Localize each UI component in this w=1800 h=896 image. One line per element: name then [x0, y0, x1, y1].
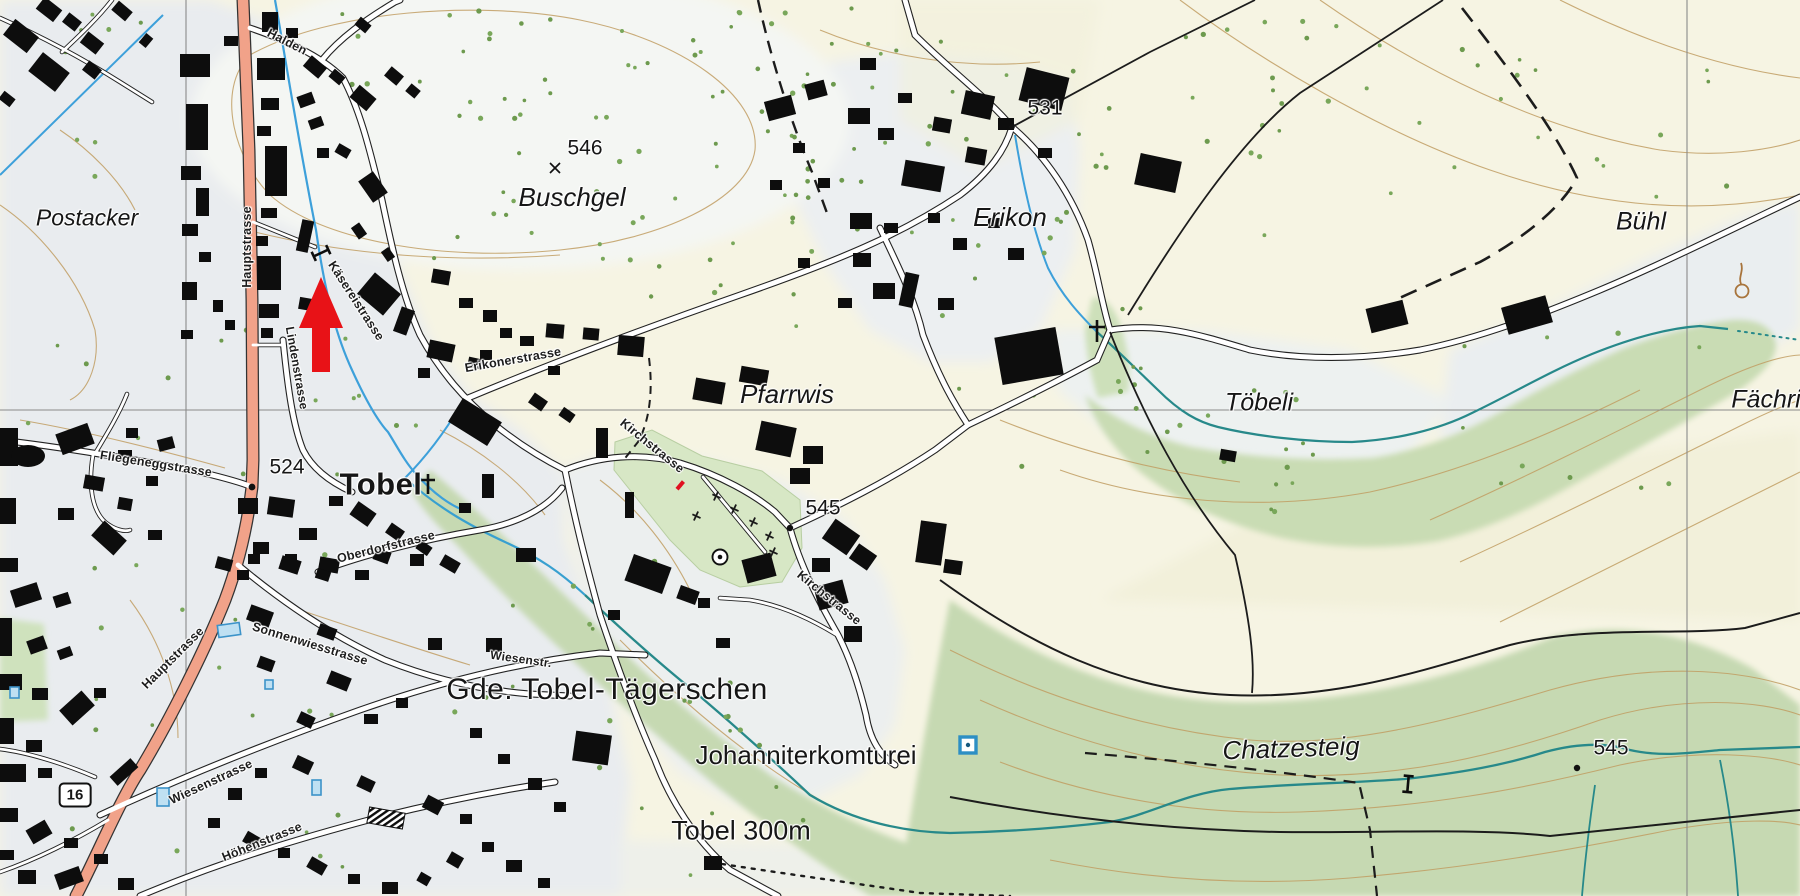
building [259, 304, 279, 318]
building [257, 58, 285, 80]
tree-dot [691, 38, 696, 43]
building [0, 498, 16, 524]
tree-dot [166, 375, 171, 380]
tree-dot [973, 276, 977, 280]
building [770, 180, 782, 190]
tree-dot [1452, 165, 1456, 169]
tree-dot [830, 42, 834, 46]
building [186, 104, 208, 150]
tree-dot [640, 215, 645, 220]
tree-dot [1139, 367, 1143, 371]
tree-dot [503, 97, 507, 101]
tree-dot [1138, 306, 1142, 310]
tree-dot [139, 21, 143, 25]
tree-dot [233, 618, 237, 622]
tree-dot [452, 709, 457, 714]
tree-dot [1107, 106, 1112, 111]
tree-dot [1071, 69, 1076, 74]
building [482, 842, 494, 852]
tree-dot [432, 256, 436, 260]
tree-dot [1206, 413, 1210, 417]
tree-dot [1705, 68, 1709, 72]
tree-dot [1499, 481, 1503, 485]
building [884, 223, 898, 233]
building [596, 428, 608, 458]
tree-dot [1279, 101, 1284, 106]
tree-dot [414, 423, 418, 427]
tree-dot [601, 257, 605, 261]
tree-dot [418, 80, 422, 84]
tree-dot [365, 81, 370, 86]
label-h546: 546 [567, 138, 602, 159]
tree-dot [633, 66, 637, 70]
building [238, 498, 258, 514]
building [418, 368, 430, 378]
tree-dot [964, 137, 969, 142]
building [26, 740, 42, 752]
building [928, 213, 940, 223]
tree-dot [1697, 345, 1701, 349]
tree-dot [134, 563, 138, 567]
tree-dot [512, 116, 517, 121]
building [228, 788, 242, 800]
tree-dot [866, 42, 870, 46]
tree-dot [926, 141, 931, 146]
tree-dot [839, 178, 844, 183]
building [199, 252, 211, 262]
tree-dot [831, 82, 836, 87]
building [482, 474, 494, 498]
tree-dot [883, 141, 887, 145]
tree-dot [723, 715, 727, 719]
building [1008, 248, 1024, 260]
tree-dot [322, 552, 327, 557]
tree-dot [607, 718, 612, 723]
tree-dot [335, 813, 340, 818]
building [938, 298, 954, 310]
tree-dot [910, 230, 914, 234]
building [459, 503, 471, 513]
tree-dot [738, 727, 743, 732]
tree-dot [1005, 73, 1009, 77]
building [146, 476, 158, 486]
tree-dot [1116, 379, 1121, 384]
tree-dot [760, 109, 765, 114]
tree-dot [1518, 58, 1522, 62]
tree-dot [357, 394, 361, 398]
building [18, 870, 36, 884]
tree-dot [594, 115, 598, 119]
building [257, 126, 271, 136]
building [0, 558, 18, 572]
tree-dot [314, 398, 318, 402]
tree-dot [1595, 157, 1600, 162]
building [617, 335, 645, 357]
tree-dot [1536, 136, 1540, 140]
tree-dot [598, 242, 602, 246]
tree-dot [1093, 164, 1098, 169]
building [498, 754, 510, 764]
label-tobel300: Tobel 300m [671, 818, 811, 845]
tree-dot [1461, 426, 1465, 430]
tree-dot [1277, 129, 1281, 133]
tree-dot [715, 165, 719, 169]
building [554, 802, 566, 812]
tree-dot [1365, 86, 1369, 90]
tree-dot [93, 140, 97, 144]
label-faechri: Fächri [1731, 388, 1800, 413]
building [460, 814, 472, 824]
building [793, 143, 805, 153]
tree-dot [1534, 68, 1538, 72]
tree-dot [870, 86, 874, 90]
building [148, 530, 162, 540]
label-tobel: Tobel [340, 469, 423, 500]
building [698, 598, 710, 608]
tree-dot [591, 627, 595, 631]
tree-dot [1602, 164, 1606, 168]
tree-dot [1263, 20, 1268, 25]
tree-dot [518, 112, 523, 117]
tree-dot [640, 806, 644, 810]
tree-dot [626, 63, 630, 67]
tree-dot [26, 421, 30, 425]
building [790, 468, 810, 484]
building [118, 878, 134, 890]
tree-dot [1724, 183, 1729, 188]
building [348, 874, 360, 884]
tree-dot [708, 257, 713, 262]
building [180, 54, 210, 77]
tree-dot [90, 13, 94, 17]
building [818, 178, 830, 188]
building [953, 238, 967, 250]
building [803, 446, 823, 464]
tree-dot [976, 243, 981, 248]
tree-dot [792, 135, 797, 140]
tree-dot [927, 124, 932, 129]
building [0, 764, 26, 782]
tree-dot [1270, 75, 1275, 80]
tree-dot [849, 6, 853, 10]
tree-dot [620, 29, 624, 33]
building [470, 728, 482, 738]
tree-dot [519, 21, 524, 26]
building [943, 559, 963, 575]
label-erikon: Erikon [973, 204, 1047, 230]
building [225, 320, 235, 330]
building [181, 330, 193, 339]
tree-dot [455, 235, 459, 239]
building [257, 256, 281, 290]
tree-dot [1165, 429, 1170, 434]
tree-dot [1462, 344, 1466, 348]
tree-dot [217, 666, 221, 670]
tree-dot [646, 61, 650, 65]
tree-dot [1666, 481, 1671, 486]
tree-dot [340, 12, 344, 16]
tree-dot [476, 8, 481, 13]
tree-dot [70, 826, 75, 831]
tree-dot [809, 249, 814, 254]
tree-dot [1293, 397, 1298, 402]
building [844, 626, 862, 642]
map[interactable]: PostackerBuschgelErikonPfarrwisTöbeliBüh… [0, 0, 1800, 896]
label-h545b: 545 [1593, 738, 1628, 759]
tree-dot [511, 604, 515, 608]
building [548, 366, 560, 375]
tree-dot [719, 283, 723, 287]
label-toebeli: Töbeli [1225, 391, 1293, 416]
building [278, 848, 290, 858]
building [850, 213, 872, 229]
tree-dot [1300, 19, 1305, 24]
building [878, 128, 894, 140]
tree-dot [604, 115, 609, 120]
tree-dot [1262, 233, 1266, 237]
monument-square-icon [960, 737, 976, 753]
tree-dot [241, 472, 246, 477]
building [538, 878, 550, 888]
tree-dot [712, 290, 717, 295]
tree-dot [1131, 365, 1135, 369]
building [428, 638, 442, 650]
tree-dot [548, 17, 553, 22]
tree-dot [504, 213, 508, 217]
tree-dot [1019, 464, 1024, 469]
tree-dot [806, 195, 811, 200]
tree-dot [859, 179, 863, 183]
tree-dot [1104, 165, 1109, 170]
tree-dot [794, 193, 799, 198]
tree-dot [93, 727, 98, 732]
tree-dot [517, 151, 521, 155]
building [965, 146, 987, 165]
tree-dot [219, 339, 223, 343]
tree-dot [673, 197, 677, 201]
tree-dot [806, 72, 810, 76]
building [213, 300, 223, 312]
tree-dot [951, 90, 955, 94]
building [253, 542, 269, 554]
tree-dot [1304, 36, 1309, 41]
building [572, 731, 612, 766]
tree-dot [755, 67, 760, 72]
tree-dot [343, 337, 347, 341]
tree-dot [721, 90, 725, 94]
tree-dot [852, 147, 856, 151]
tree-dot [1042, 251, 1047, 256]
tree-dot [1118, 389, 1123, 394]
building [798, 258, 810, 268]
building [248, 554, 260, 564]
tree-dot [1274, 482, 1278, 486]
tree-dot [1100, 153, 1104, 157]
tree-dot [805, 179, 810, 184]
tree-dot [617, 159, 622, 164]
tree-dot [636, 149, 641, 154]
building [500, 328, 512, 338]
tree-dot [1545, 335, 1549, 339]
building [256, 236, 268, 246]
label-postacker: Postacker [36, 207, 138, 230]
tree-dot [1048, 235, 1053, 240]
building [94, 854, 108, 864]
tree-dot [1285, 465, 1290, 470]
tree-dot [1059, 220, 1063, 224]
tree-dot [92, 174, 97, 179]
building [64, 838, 78, 848]
tree-dot [1389, 191, 1393, 195]
building [267, 496, 295, 517]
building [224, 36, 238, 46]
tree-dot [1520, 463, 1525, 468]
label-johanniter: Johanniterkomturei [695, 742, 916, 768]
tree-dot [587, 622, 592, 627]
tree-dot [1417, 121, 1421, 125]
building [396, 698, 408, 708]
tree-dot [307, 709, 312, 714]
tree-dot [714, 142, 718, 146]
label-gde: Gde. Tobel-Tägerschen [446, 675, 767, 705]
tree-dot [1334, 24, 1338, 28]
tree-dot [774, 785, 778, 789]
building [38, 768, 52, 778]
label-shield16: 16 [59, 783, 92, 808]
label-h524: 524 [269, 457, 304, 478]
building [208, 818, 220, 828]
tree-dot [543, 77, 547, 81]
tree-dot [810, 159, 815, 164]
tree-dot [501, 190, 505, 194]
tree-dot [649, 294, 653, 298]
tree-dot [468, 100, 472, 104]
building [317, 148, 329, 158]
tree-dot [355, 34, 360, 39]
tree-dot [1326, 98, 1331, 103]
tree-dot [1311, 453, 1315, 457]
tree-dot [1205, 139, 1210, 144]
tree-dot [523, 99, 527, 103]
building [261, 208, 277, 218]
building [117, 497, 133, 511]
building [838, 298, 852, 308]
tree-dot [1201, 32, 1206, 37]
building [261, 98, 279, 110]
tree-dot [769, 21, 774, 26]
tree-dot [394, 423, 399, 428]
tree-dot [1706, 80, 1710, 84]
building [625, 492, 634, 518]
tree-dot [92, 566, 97, 571]
tree-dot [530, 231, 534, 235]
building [237, 570, 249, 580]
chapel-circle-icon [713, 550, 728, 565]
tree-dot [939, 40, 943, 44]
building [459, 298, 473, 308]
tree-dot [457, 114, 461, 118]
tree-dot [1249, 150, 1254, 155]
building [261, 328, 273, 338]
tree-dot [1257, 154, 1262, 159]
tree-dot [487, 36, 492, 41]
tree-dot [791, 292, 795, 296]
building [812, 558, 830, 572]
tree-dot [511, 199, 516, 204]
tree-dot [657, 264, 662, 269]
tree-dot [491, 211, 496, 216]
tree-dot [1134, 406, 1139, 411]
tree-dot [783, 193, 787, 197]
tree-dot [1378, 43, 1382, 47]
building [860, 58, 876, 70]
tree-dot [352, 396, 356, 400]
tree-dot [84, 361, 89, 366]
tree-dot [1568, 475, 1573, 480]
building [0, 808, 18, 822]
tree-dot [1225, 27, 1230, 32]
building [506, 860, 522, 872]
tree-dot [94, 697, 98, 701]
building [58, 508, 74, 520]
tree-dot [957, 387, 961, 391]
tree-dot [1145, 450, 1149, 454]
building [704, 856, 722, 870]
building [299, 528, 317, 540]
tree-dot [180, 607, 185, 612]
tree-dot [75, 138, 79, 142]
tree-dot [1291, 481, 1295, 485]
building [364, 714, 378, 724]
building [255, 768, 267, 778]
tree-dot [1120, 307, 1124, 311]
tree-dot [1615, 331, 1620, 336]
tree-dot [488, 31, 493, 36]
tree-dot [1064, 210, 1069, 215]
building [265, 146, 287, 196]
building [545, 323, 564, 339]
tree-dot [737, 10, 742, 15]
tree-dot [1191, 96, 1195, 100]
tree-dot [699, 50, 703, 54]
tree-dot [251, 714, 255, 718]
building [11, 445, 45, 467]
building [126, 428, 138, 438]
building [528, 778, 542, 790]
building [181, 166, 201, 180]
building [410, 554, 424, 566]
tree-dot [318, 854, 323, 859]
building [182, 224, 198, 236]
building [94, 688, 106, 698]
tree-dot [597, 765, 602, 770]
building [1038, 148, 1052, 158]
label-h531: 531 [1027, 98, 1062, 119]
tree-dot [766, 129, 770, 133]
building [0, 618, 12, 656]
tree-dot [99, 625, 104, 630]
building [716, 638, 730, 648]
building [898, 93, 912, 103]
label-h545a: 545 [805, 498, 840, 519]
tree-dot [56, 344, 60, 348]
tree-dot [174, 848, 179, 853]
tree-dot [1271, 88, 1275, 92]
tree-dot [783, 10, 788, 15]
tree-dot [879, 52, 883, 56]
tree-dot [106, 27, 111, 32]
tree-dot [631, 220, 636, 225]
